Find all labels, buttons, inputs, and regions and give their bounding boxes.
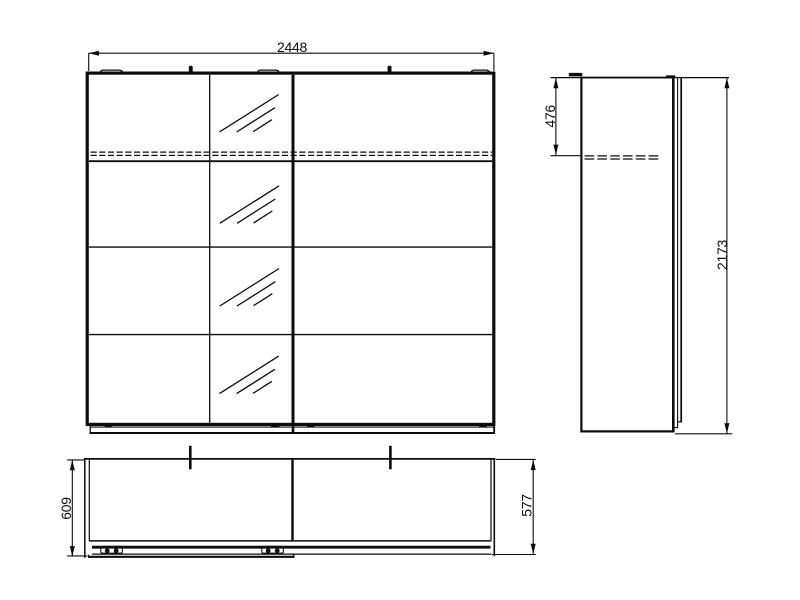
svg-text:609: 609 [58,497,74,520]
svg-text:2448: 2448 [277,39,307,55]
svg-text:577: 577 [518,494,534,517]
svg-text:476: 476 [542,105,558,128]
svg-text:2173: 2173 [714,240,730,270]
